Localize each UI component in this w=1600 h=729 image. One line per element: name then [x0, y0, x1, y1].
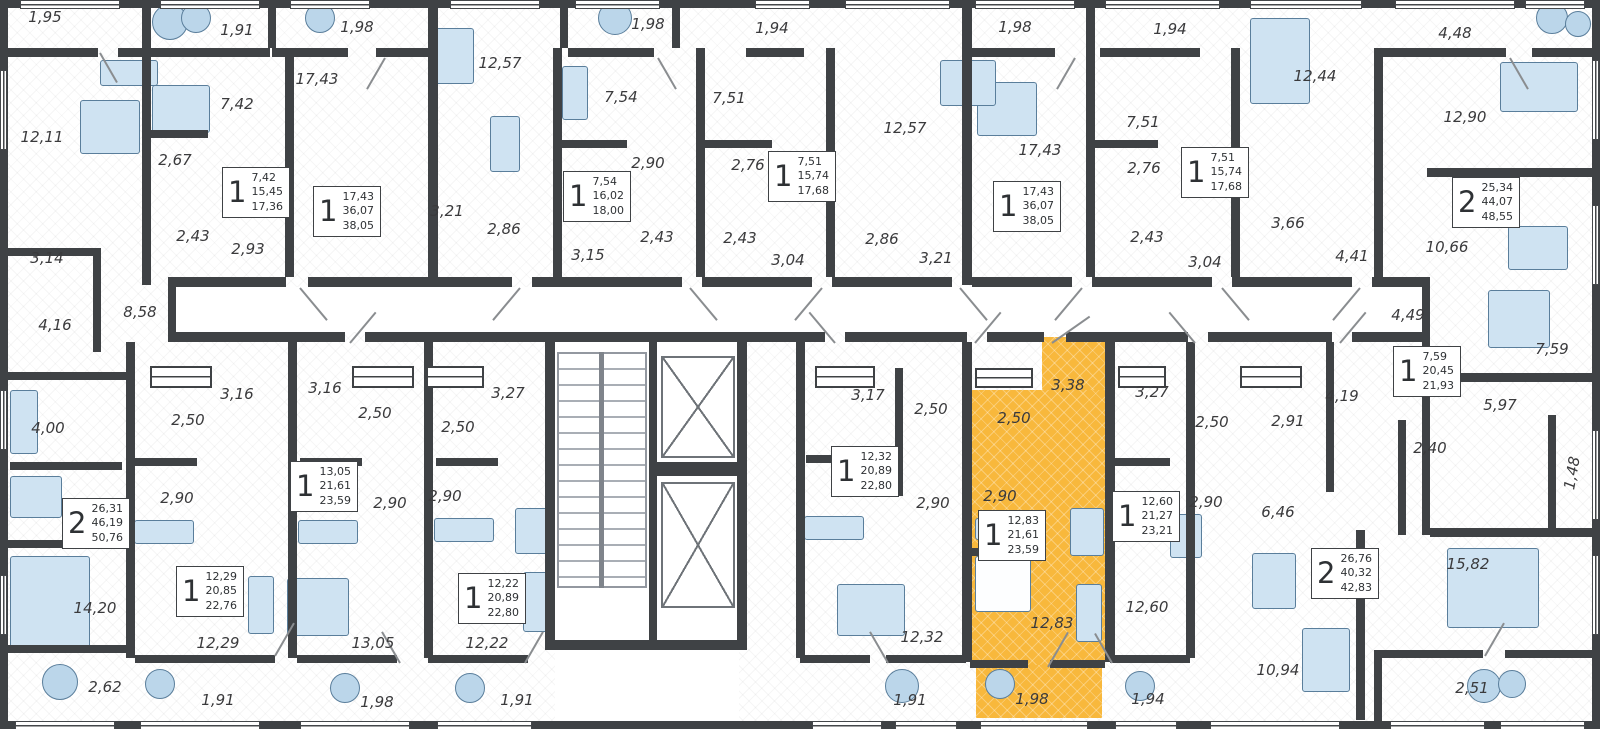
unit-area-value: 17,68: [797, 184, 829, 198]
room-area-label: 1,91: [500, 691, 533, 709]
unit-areas: 13,0521,6123,59: [319, 465, 351, 508]
room-area-label: 3,21: [430, 202, 463, 220]
window: [815, 366, 875, 388]
window: [0, 390, 7, 450]
furniture: [298, 520, 358, 544]
furniture: [1508, 226, 1568, 270]
window: [1250, 0, 1362, 9]
wall: [168, 277, 286, 287]
unit-areas: 7,5920,4521,93: [1422, 350, 1454, 393]
unit-info-card[interactable]: 112,3220,8922,80: [831, 446, 899, 497]
wall: [1050, 660, 1105, 668]
room-area-label: 1,98: [631, 15, 664, 33]
wall: [268, 0, 276, 48]
wall: [436, 458, 498, 466]
room-area-label: 2,90: [160, 489, 193, 507]
wall: [962, 342, 972, 662]
unit-info-card[interactable]: 112,2920,8522,76: [176, 566, 244, 617]
window: [15, 721, 115, 729]
wall: [655, 462, 737, 476]
furniture: [434, 518, 494, 542]
wall: [1532, 48, 1600, 57]
room-area-label: 12,11: [21, 128, 64, 146]
room-area-label: 12,29: [197, 634, 240, 652]
room-area-label: 4,16: [38, 316, 71, 334]
room-area-label: 12,60: [1126, 598, 1169, 616]
furniture: [10, 476, 62, 518]
unit-rooms-count: 1: [228, 178, 246, 207]
unit-area-value: 12,29: [205, 570, 237, 584]
wall: [560, 0, 568, 48]
wall: [285, 48, 294, 277]
bed: [975, 556, 1031, 612]
unit-area-value: 22,80: [860, 479, 892, 493]
room-area-label: 3,17: [851, 386, 884, 404]
room-area-label: 17,43: [1019, 141, 1062, 159]
wall: [845, 332, 967, 342]
window: [160, 0, 260, 9]
furniture: [562, 66, 588, 120]
unit-area-value: 20,85: [205, 584, 237, 598]
unit-areas: 25,3444,0748,55: [1481, 181, 1513, 224]
window: [352, 366, 414, 388]
unit-area-value: 15,74: [1210, 165, 1242, 179]
unit-area-value: 15,74: [797, 169, 829, 183]
wall: [1086, 0, 1095, 48]
unit-areas: 17,4336,0738,05: [1022, 185, 1054, 228]
wall: [745, 332, 825, 342]
unit-area-value: 7,42: [251, 171, 283, 185]
unit-area-value: 17,43: [1022, 185, 1054, 199]
window: [450, 0, 540, 9]
room-area-label: 2,67: [158, 151, 191, 169]
wall: [10, 462, 122, 470]
room-area-label: 2,90: [983, 487, 1016, 505]
room-area-label: 4,48: [1438, 24, 1471, 42]
window: [150, 366, 212, 388]
unit-area-value: 26,31: [91, 502, 123, 516]
unit-info-card[interactable]: 17,5115,7417,68: [768, 151, 836, 202]
wall: [135, 655, 275, 663]
unit-info-card[interactable]: 112,6021,2723,21: [1112, 491, 1180, 542]
wall: [696, 48, 705, 277]
window: [975, 0, 1075, 9]
wall: [428, 0, 438, 285]
wall: [1450, 373, 1600, 382]
unit-area-value: 50,76: [91, 531, 123, 545]
wall: [1398, 420, 1406, 535]
wall: [0, 645, 126, 653]
window: [1592, 205, 1599, 285]
wall: [737, 342, 747, 648]
room-area-label: 1,48: [1560, 455, 1584, 491]
room-area-label: 4,19: [1325, 387, 1358, 405]
balcony-chair: [455, 673, 485, 703]
window: [0, 70, 7, 150]
room-area-label: 7,51: [712, 89, 745, 107]
room-area-label: 2,91: [1271, 412, 1304, 430]
wall: [1505, 650, 1600, 658]
unit-area-value: 17,68: [1210, 180, 1242, 194]
unit-info-card[interactable]: 112,8321,6123,59: [978, 510, 1046, 561]
room-area-label: 2,51: [1455, 679, 1488, 697]
unit-areas: 12,8321,6123,59: [1007, 514, 1039, 557]
unit-rooms-count: 2: [68, 509, 86, 538]
window: [812, 721, 882, 729]
room-area-label: 3,38: [1051, 376, 1084, 394]
furniture: [1070, 508, 1104, 556]
wall: [672, 0, 680, 48]
wall: [93, 248, 101, 352]
room-area-label: 10,94: [1257, 661, 1300, 679]
wall: [1115, 458, 1170, 466]
furniture: [80, 100, 140, 154]
furniture: [837, 584, 905, 636]
unit-area-value: 7,59: [1422, 350, 1454, 364]
door-swing: [366, 58, 386, 90]
unit-area-value: 20,89: [487, 591, 519, 605]
room-area-label: 2,90: [373, 494, 406, 512]
room-area-label: 14,20: [74, 599, 117, 617]
wall: [970, 660, 1028, 668]
room-area-label: 1,98: [360, 693, 393, 711]
room-area-label: 12,44: [1294, 67, 1337, 85]
window: [437, 721, 532, 729]
room-area-label: 2,90: [916, 494, 949, 512]
wall: [0, 48, 98, 57]
window: [975, 368, 1033, 388]
room-area-label: 2,40: [1413, 439, 1446, 457]
room-area-label: 2,50: [914, 400, 947, 418]
wall: [272, 48, 348, 57]
wall: [297, 655, 397, 663]
window: [1592, 555, 1599, 635]
balcony-chair: [42, 664, 78, 700]
wall: [118, 48, 270, 57]
wall: [135, 458, 197, 466]
wall: [1430, 528, 1600, 537]
unit-area-value: 26,76: [1340, 552, 1372, 566]
room-area-label: 3,14: [30, 249, 63, 267]
door-swing: [1056, 58, 1076, 90]
room-area-label: 4,41: [1335, 247, 1368, 265]
room-area-label: 2,62: [88, 678, 121, 696]
unit-areas: 7,4215,4517,36: [251, 171, 283, 214]
staircase-divider: [599, 352, 604, 588]
elevator-shaft: [661, 356, 735, 458]
room-area-label: 12,57: [479, 54, 522, 72]
unit-area-value: 12,60: [1141, 495, 1173, 509]
wall: [1086, 140, 1158, 148]
window: [1240, 366, 1302, 388]
wall: [568, 48, 654, 57]
unit-areas: 12,2220,8922,80: [487, 577, 519, 620]
unit-area-value: 21,27: [1141, 509, 1173, 523]
room-area-label: 1,98: [340, 18, 373, 36]
room-area-label: 3,15: [571, 246, 604, 264]
door-swing: [524, 631, 544, 663]
wall: [886, 655, 966, 663]
room-area-label: 2,86: [487, 220, 520, 238]
unit-info-card[interactable]: 117,4336,0738,05: [313, 186, 381, 237]
room-area-label: 15,82: [1447, 555, 1490, 573]
window: [1592, 60, 1599, 140]
unit-areas: 17,4336,0738,05: [342, 190, 374, 233]
wall: [965, 48, 1055, 57]
unit-rooms-count: 1: [296, 472, 314, 501]
room-area-label: 1,95: [28, 8, 61, 26]
unit-area-value: 12,22: [487, 577, 519, 591]
wall: [532, 277, 682, 287]
wall: [1352, 332, 1430, 342]
unit-area-value: 38,05: [342, 219, 374, 233]
room-area-label: 3,27: [1135, 383, 1168, 401]
window: [1105, 0, 1220, 9]
room-area-label: 2,50: [997, 409, 1030, 427]
unit-info-card[interactable]: 17,5115,7417,68: [1181, 147, 1249, 198]
room-area-label: 2,90: [631, 154, 664, 172]
unit-area-value: 21,61: [1007, 528, 1039, 542]
wall: [376, 48, 428, 57]
furniture: [1302, 628, 1350, 692]
furniture: [134, 520, 194, 544]
unit-info-card[interactable]: 117,4336,0738,05: [993, 181, 1061, 232]
room-area-label: 4,00: [31, 419, 64, 437]
window: [0, 575, 7, 635]
furniture: [490, 116, 520, 172]
wall: [1378, 650, 1483, 658]
unit-area-value: 18,00: [592, 204, 624, 218]
wall: [649, 332, 657, 650]
unit-rooms-count: 1: [774, 162, 792, 191]
door-swing: [657, 58, 677, 90]
wall: [1232, 277, 1352, 287]
wall: [702, 277, 812, 287]
wall: [832, 277, 952, 287]
unit-area-value: 7,51: [797, 155, 829, 169]
room-area-label: 1,98: [998, 18, 1031, 36]
window: [575, 0, 660, 9]
wall: [365, 332, 545, 342]
wall: [545, 640, 747, 650]
unit-area-value: 22,76: [205, 599, 237, 613]
unit-info-card[interactable]: 17,4215,4517,36: [222, 167, 290, 218]
room-area-label: 7,59: [1535, 340, 1568, 358]
unit-area-value: 17,43: [342, 190, 374, 204]
balcony-chair: [330, 673, 360, 703]
unit-info-card[interactable]: 225,3444,0748,55: [1452, 177, 1520, 228]
wall: [142, 130, 208, 138]
window: [1592, 430, 1599, 520]
window: [1395, 0, 1515, 9]
window: [290, 0, 370, 9]
wall: [1208, 332, 1332, 342]
room-area-label: 17,43: [296, 70, 339, 88]
room-area-label: 2,43: [640, 228, 673, 246]
unit-info-card[interactable]: 226,3146,1950,76: [62, 498, 130, 549]
balcony-chair: [1498, 670, 1526, 698]
wall: [1066, 332, 1188, 342]
unit-area-value: 44,07: [1481, 195, 1513, 209]
furniture: [1500, 62, 1578, 112]
unit-area-value: 22,80: [487, 606, 519, 620]
furniture: [1252, 553, 1296, 609]
window: [426, 366, 484, 388]
room-area-label: 2,90: [1189, 493, 1222, 511]
unit-area-value: 23,21: [1141, 524, 1173, 538]
window: [1115, 721, 1177, 729]
unit-area-value: 21,93: [1422, 379, 1454, 393]
unit-rooms-count: 1: [319, 197, 337, 226]
unit-area-value: 13,05: [319, 465, 351, 479]
unit-rooms-count: 1: [464, 584, 482, 613]
unit-area-value: 38,05: [1022, 214, 1054, 228]
furniture: [152, 85, 210, 133]
room-area-label: 1,94: [1153, 20, 1186, 38]
room-area-label: 3,66: [1271, 214, 1304, 232]
window: [1525, 0, 1585, 9]
window: [1390, 721, 1485, 729]
window: [845, 0, 950, 9]
wall: [168, 332, 345, 342]
room-area-label: 1,94: [755, 19, 788, 37]
unit-areas: 7,5416,0218,00: [592, 175, 624, 218]
wall: [1548, 415, 1556, 537]
wall: [557, 140, 627, 148]
unit-area-value: 7,51: [1210, 151, 1242, 165]
wall: [545, 342, 555, 648]
wall: [142, 48, 151, 285]
unit-area-value: 7,54: [592, 175, 624, 189]
wall: [987, 332, 1044, 342]
room-area-label: 1,91: [220, 21, 253, 39]
room-area-label: 3,21: [919, 249, 952, 267]
window: [1500, 721, 1585, 729]
unit-info-card[interactable]: 113,0521,6123,59: [290, 461, 358, 512]
unit-rooms-count: 1: [1118, 502, 1136, 531]
room-area-label: 2,86: [865, 230, 898, 248]
room-area-label: 7,42: [220, 95, 253, 113]
unit-area-value: 20,45: [1422, 364, 1454, 378]
unit-area-value: 23,59: [1007, 543, 1039, 557]
unit-area-value: 40,32: [1340, 566, 1372, 580]
floor-plan: 1,951,911,9812,571,981,941,981,9412,444,…: [0, 0, 1600, 729]
room-area-label: 13,05: [352, 634, 395, 652]
room-area-label: 12,22: [466, 634, 509, 652]
window: [980, 721, 1088, 729]
unit-info-card[interactable]: 112,2220,8922,80: [458, 573, 526, 624]
room-area-label: 2,50: [358, 404, 391, 422]
room-area-label: 2,90: [428, 487, 461, 505]
room-area-label: 2,93: [231, 240, 264, 258]
unit-area-value: 12,83: [1007, 514, 1039, 528]
room-area-label: 10,66: [1426, 238, 1469, 256]
unit-info-card[interactable]: 226,7640,3242,83: [1311, 548, 1379, 599]
unit-areas: 12,6021,2723,21: [1141, 495, 1173, 538]
room-area-label: 3,16: [308, 379, 341, 397]
wall: [1100, 48, 1200, 57]
unit-rooms-count: 1: [182, 577, 200, 606]
unit-area-value: 23,59: [319, 494, 351, 508]
room-area-label: 5,97: [1483, 396, 1516, 414]
unit-info-card[interactable]: 17,5416,0218,00: [563, 171, 631, 222]
unit-info-card[interactable]: 17,5920,4521,93: [1393, 346, 1461, 397]
unit-rooms-count: 1: [1187, 158, 1205, 187]
unit-area-value: 36,07: [342, 204, 374, 218]
room-area-label: 12,32: [901, 628, 944, 646]
unit-rooms-count: 2: [1458, 188, 1476, 217]
unit-rooms-count: 1: [999, 192, 1017, 221]
wall: [796, 342, 805, 658]
unit-rooms-count: 2: [1317, 559, 1335, 588]
balcony-chair: [985, 669, 1015, 699]
room-area-label: 2,50: [441, 418, 474, 436]
room-area-label: 3,27: [491, 384, 524, 402]
unit-area-value: 20,89: [860, 464, 892, 478]
furniture: [515, 508, 549, 554]
room-area-label: 3,04: [771, 251, 804, 269]
unit-area-value: 46,19: [91, 516, 123, 530]
furniture: [248, 576, 274, 634]
unit-areas: 12,2920,8522,76: [205, 570, 237, 613]
window: [1210, 721, 1340, 729]
room-area-label: 7,51: [1126, 113, 1159, 131]
room-area-label: 1,94: [1131, 690, 1164, 708]
furniture: [804, 516, 864, 540]
door-swing: [869, 631, 889, 663]
room-area-label: 4,49: [1391, 306, 1424, 324]
unit-areas: 7,5115,7417,68: [797, 155, 829, 198]
unit-rooms-count: 1: [1399, 357, 1417, 386]
unit-area-value: 21,61: [319, 479, 351, 493]
unit-areas: 12,3220,8922,80: [860, 450, 892, 493]
room-area-label: 2,43: [723, 229, 756, 247]
unit-area-value: 16,02: [592, 189, 624, 203]
wall: [962, 0, 972, 285]
wall: [1092, 277, 1212, 287]
wall: [1086, 48, 1095, 277]
wall: [308, 277, 512, 287]
room-area-label: 12,83: [1031, 614, 1074, 632]
room-area-label: 1,98: [1015, 690, 1048, 708]
wall: [8, 372, 126, 380]
unit-area-value: 17,36: [251, 200, 283, 214]
furniture: [1250, 18, 1310, 104]
wall: [800, 655, 870, 663]
room-area-label: 1,91: [893, 691, 926, 709]
room-area-label: 8,58: [123, 303, 156, 321]
room-area-label: 7,54: [604, 88, 637, 106]
room-area-label: 12,90: [1444, 108, 1487, 126]
unit-area-value: 48,55: [1481, 210, 1513, 224]
wall: [1326, 342, 1334, 492]
balcony-chair: [1565, 11, 1591, 37]
wall: [700, 140, 772, 148]
unit-rooms-count: 1: [569, 182, 587, 211]
window: [755, 0, 810, 9]
room-area-label: 2,76: [731, 156, 764, 174]
wall: [553, 48, 562, 277]
wall: [1374, 650, 1382, 721]
unit-areas: 7,5115,7417,68: [1210, 151, 1242, 194]
wall: [1110, 655, 1190, 663]
unit-area-value: 25,34: [1481, 181, 1513, 195]
balcony-chair: [145, 669, 175, 699]
room-area-label: 3,16: [220, 385, 253, 403]
wall: [428, 655, 528, 663]
room-area-label: 6,46: [1261, 503, 1294, 521]
unit-area-value: 15,45: [251, 185, 283, 199]
